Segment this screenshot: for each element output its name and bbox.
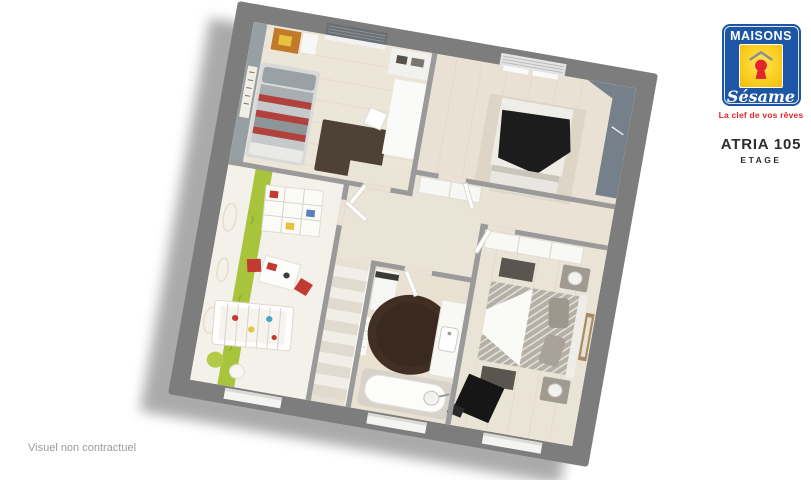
nightstand-lamp bbox=[559, 264, 591, 292]
pillow bbox=[548, 298, 569, 329]
red-chair bbox=[247, 259, 261, 272]
logo-maisons-text: MAISONS bbox=[730, 29, 792, 43]
maisons-sesame-logo: MAISONS Sésame bbox=[722, 24, 801, 106]
floor-plan-3d-render bbox=[0, 0, 811, 480]
logo-yellow-square bbox=[739, 44, 783, 88]
crib bbox=[212, 300, 294, 351]
keyhole-roof-icon bbox=[742, 47, 780, 85]
roof-icon bbox=[751, 52, 772, 59]
nightstand-lamp bbox=[539, 376, 571, 404]
floor-label: ETAGE bbox=[700, 155, 811, 165]
disclaimer-caption: Visuel non contractuel bbox=[28, 442, 136, 454]
cubby-shelf bbox=[262, 185, 324, 237]
double-bed-dark bbox=[473, 93, 586, 204]
brand-block: MAISONS Sésame La clef de vos rêves ATRI… bbox=[700, 18, 811, 165]
page: MAISONS Sésame La clef de vos rêves ATRI… bbox=[0, 0, 811, 480]
model-name: ATRIA 105 bbox=[700, 136, 811, 153]
logo-sesame-text: Sésame bbox=[727, 88, 795, 106]
brand-tagline: La clef de vos rêves bbox=[700, 110, 811, 120]
